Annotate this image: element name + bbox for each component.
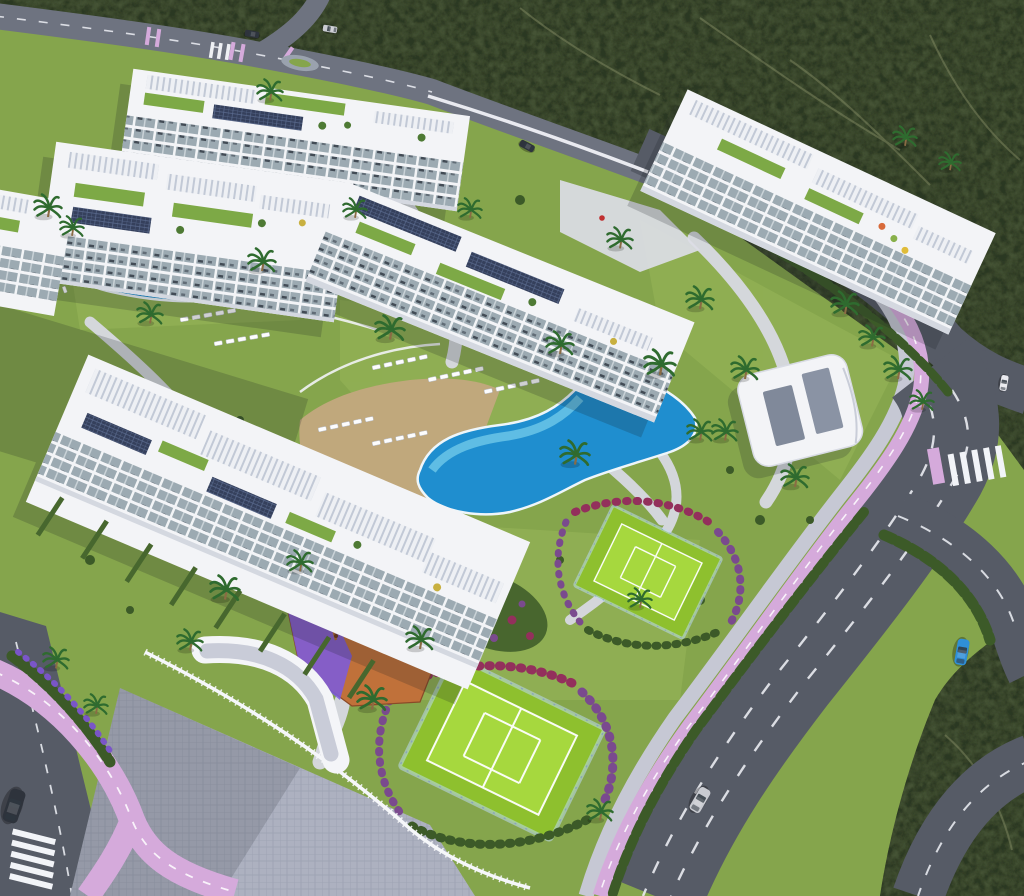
crosswalk-top: [209, 42, 231, 60]
figure-red: [599, 215, 605, 221]
render-canvas: [0, 0, 1024, 896]
aerial-render: [0, 0, 1024, 896]
